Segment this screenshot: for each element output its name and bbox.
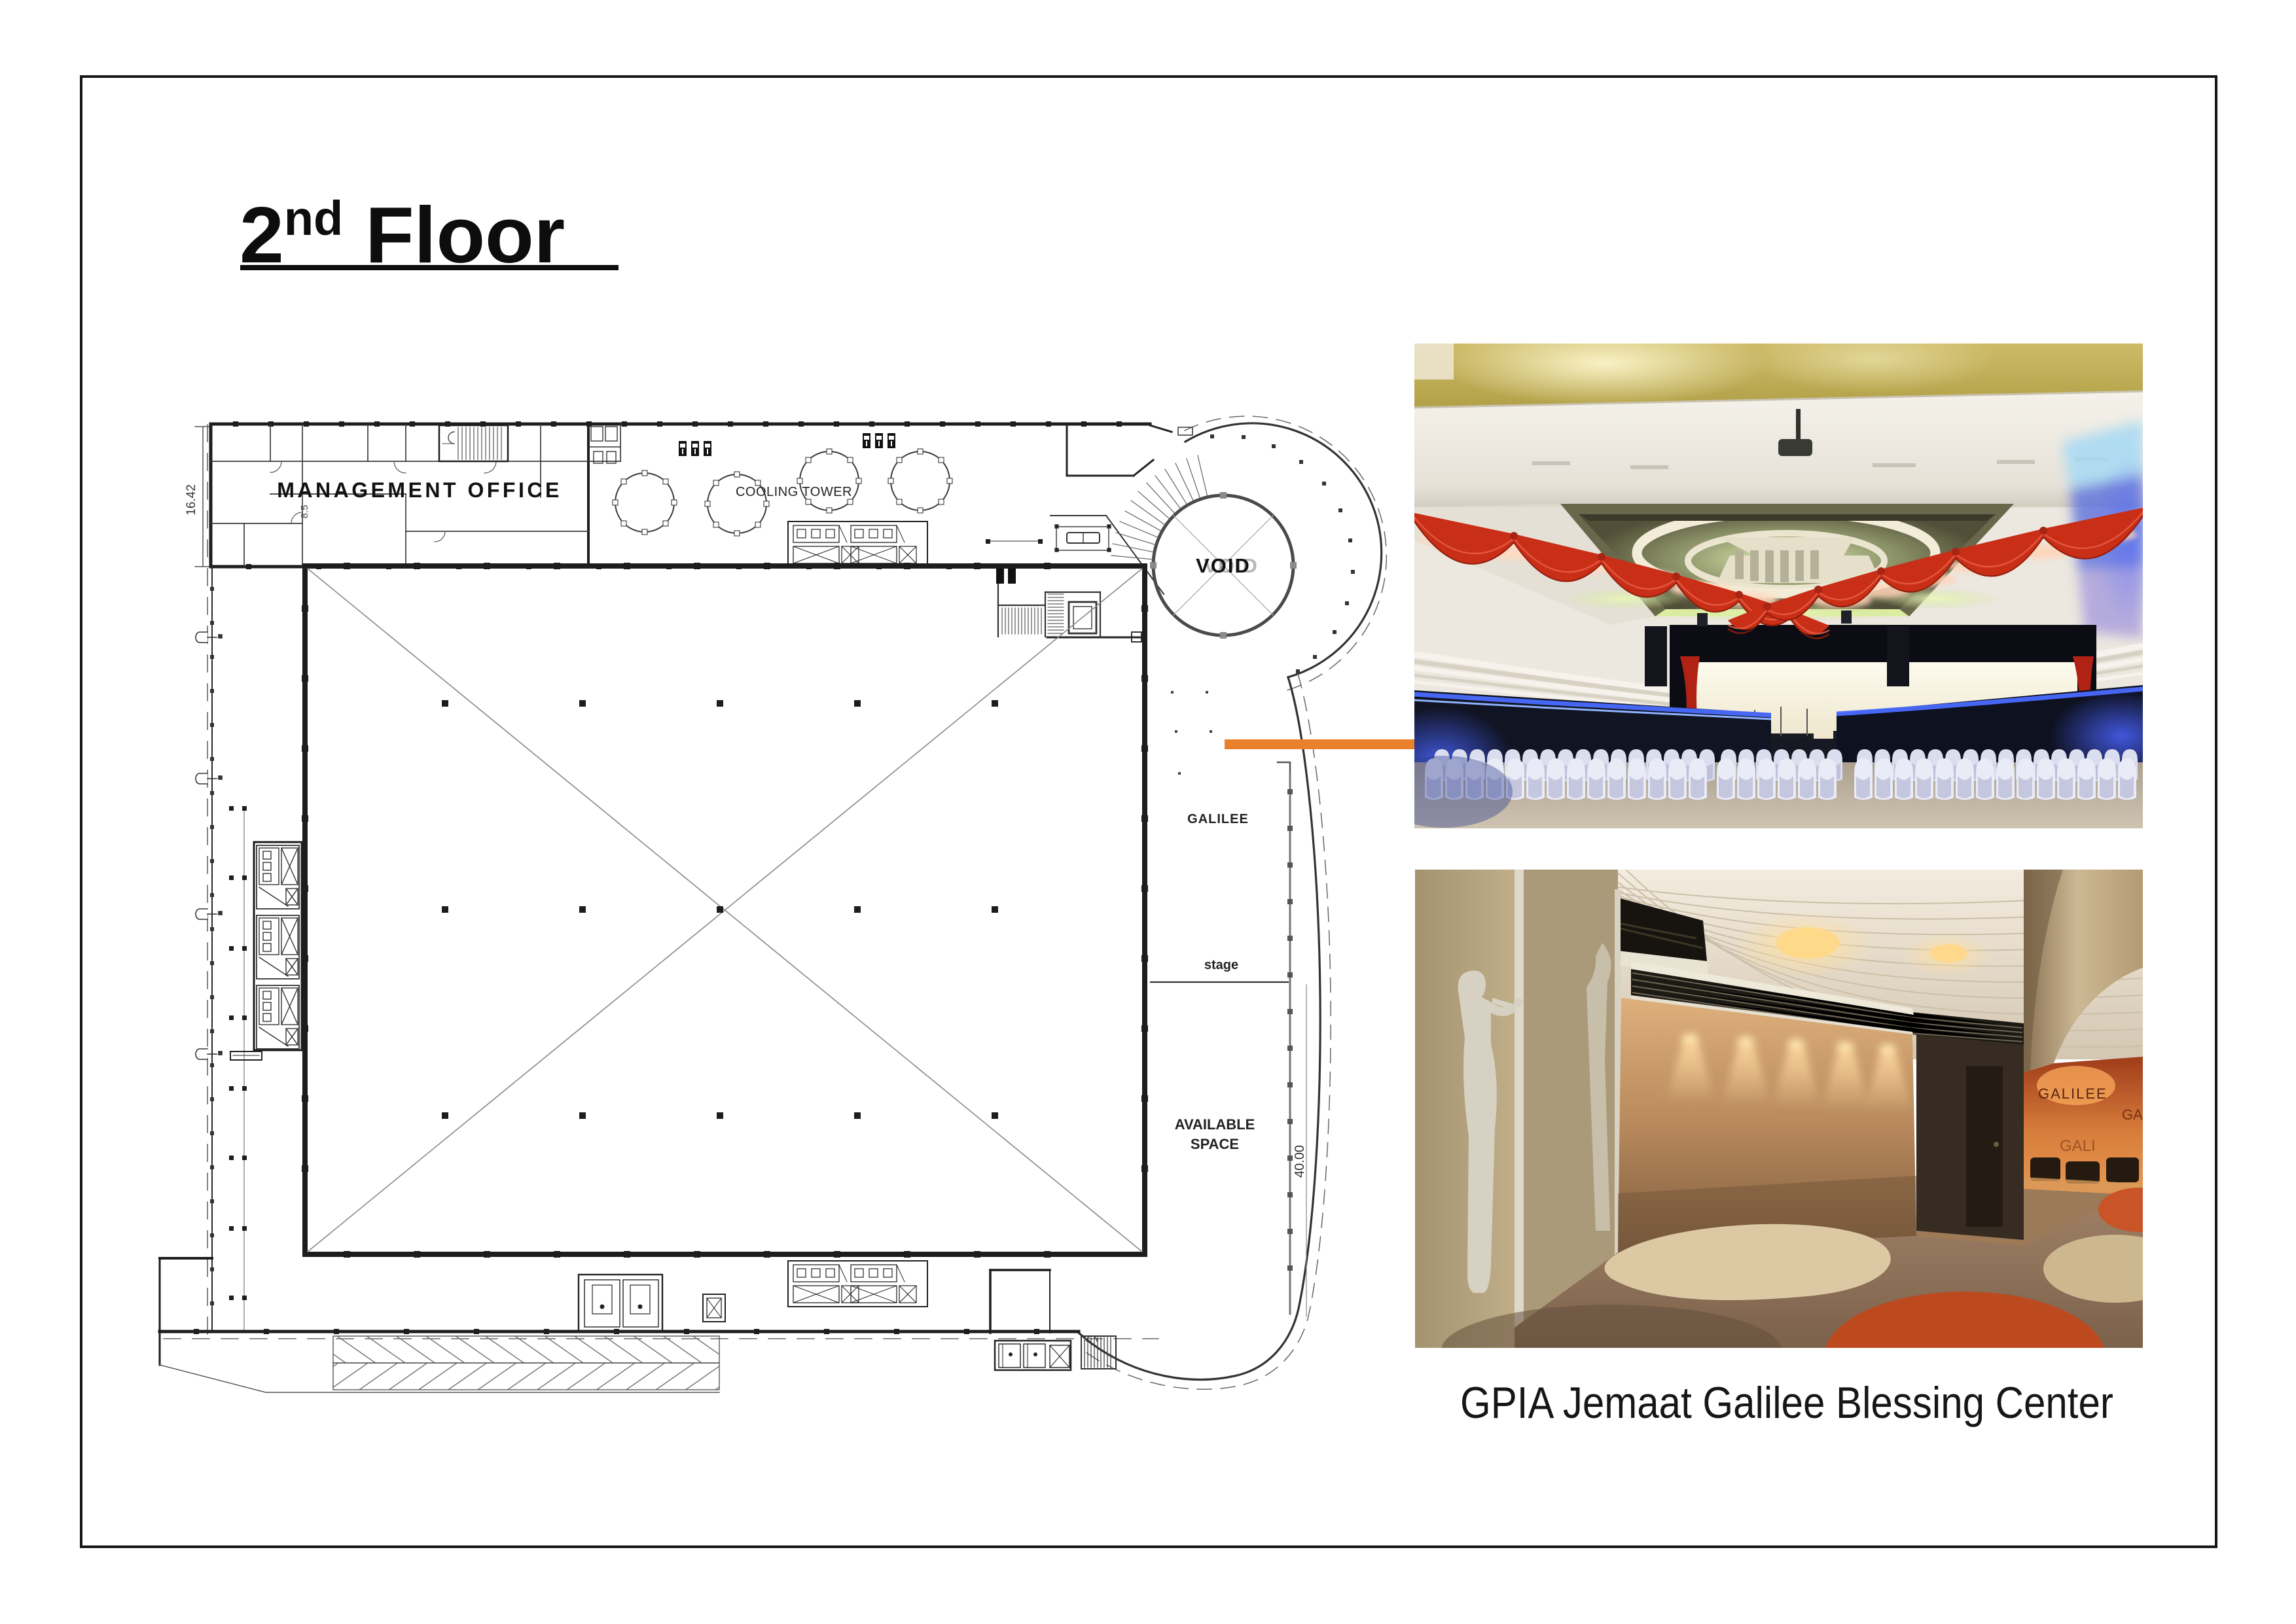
svg-text:MANAGEMENT OFFICE: MANAGEMENT OFFICE xyxy=(277,478,562,502)
svg-text:stage: stage xyxy=(1204,958,1238,972)
svg-text:8.5: 8.5 xyxy=(299,505,310,519)
svg-text:AVAILABLE: AVAILABLE xyxy=(1175,1116,1255,1133)
svg-text:SPACE: SPACE xyxy=(1191,1136,1239,1152)
svg-text:COOLING TOWER: COOLING TOWER xyxy=(736,485,852,499)
svg-text:VOID: VOID xyxy=(1204,554,1259,577)
svg-text:16.42: 16.42 xyxy=(185,484,198,516)
svg-text:GALILEE: GALILEE xyxy=(1187,812,1249,826)
svg-text:40.00: 40.00 xyxy=(1293,1145,1307,1178)
